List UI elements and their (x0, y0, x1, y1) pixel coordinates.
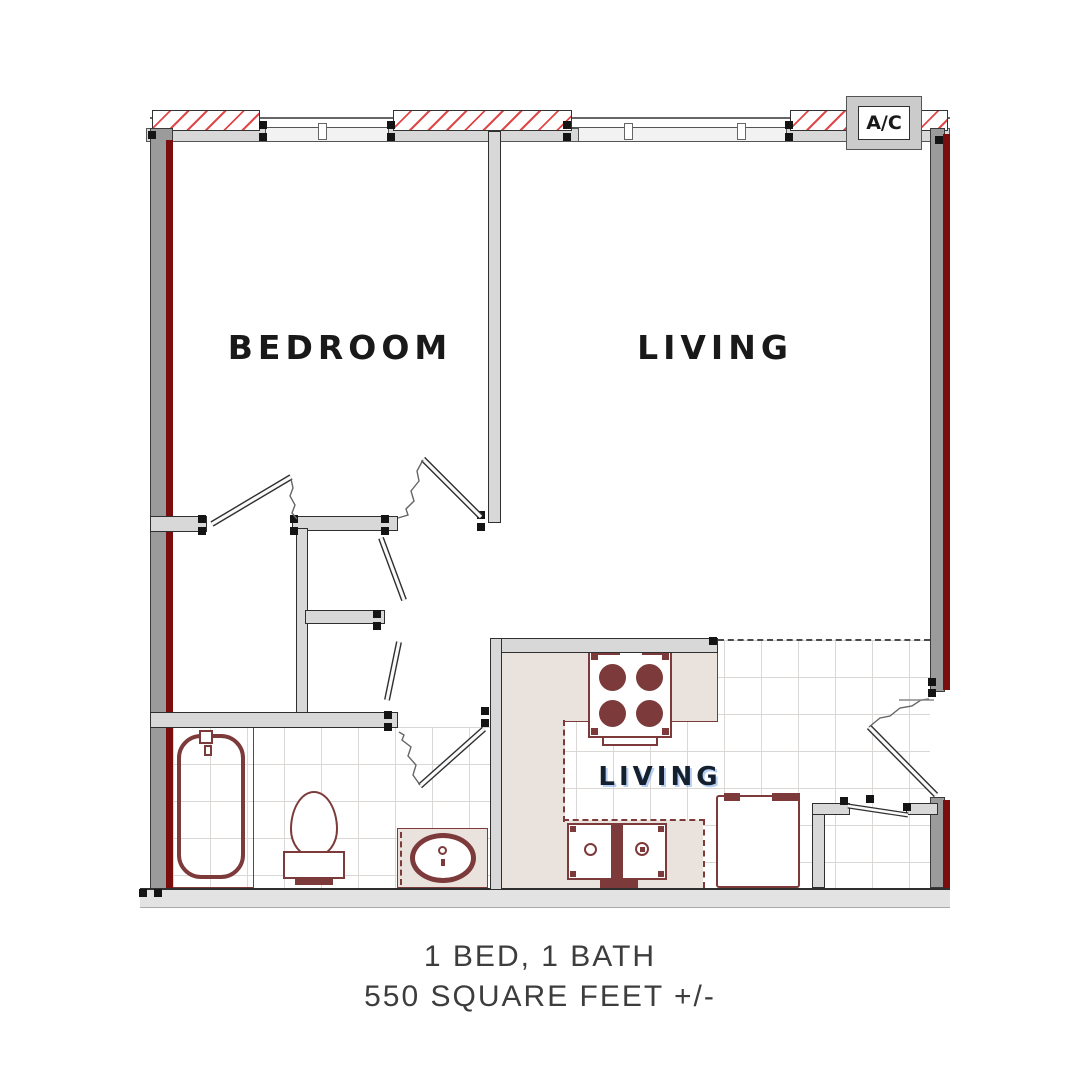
stove-corner (591, 653, 598, 660)
living-label: LIVING (610, 328, 820, 370)
hinge-marker (866, 795, 874, 803)
toilet (283, 791, 345, 888)
hinge-marker (373, 610, 381, 618)
fridge-handle (772, 793, 800, 801)
stove-corner (591, 728, 598, 735)
kitchen-label: LIVING (575, 762, 745, 798)
closet-door-lower (387, 642, 399, 700)
vanity-faucet (438, 846, 447, 855)
hinge-marker (387, 133, 395, 141)
window-mullion (624, 123, 633, 140)
closet-door-upper (381, 538, 404, 600)
hinge-marker (384, 723, 392, 731)
bathtub-faucet (199, 730, 213, 744)
left-wall-accent (166, 140, 173, 888)
sink-drain (584, 843, 597, 856)
bathtub (168, 725, 254, 888)
caption-line-2: 550 SQUARE FEET +/- (0, 980, 1080, 1014)
hinge-marker (840, 797, 848, 805)
hinge-marker (477, 511, 485, 519)
bottom-wall (140, 888, 950, 908)
stove-burner (599, 700, 626, 727)
hinge-marker (387, 121, 395, 129)
stove-burner (636, 700, 663, 727)
hinge-marker (373, 622, 381, 630)
hinge-marker (139, 889, 147, 897)
right-wall-accent (943, 134, 950, 690)
ac-label-box: A/C (858, 106, 910, 140)
sink-divider (611, 825, 623, 878)
counter-dashed-edge (703, 819, 705, 888)
sink-corner (570, 826, 576, 832)
stove-burner (599, 664, 626, 691)
hinge-marker (477, 523, 485, 531)
kitchen-sink (567, 823, 667, 880)
floor-transition-line (718, 639, 930, 641)
bedroom-door (212, 477, 297, 524)
hinge-marker (785, 133, 793, 141)
vanity-basin (410, 833, 476, 883)
sink-corner (658, 871, 664, 877)
hinge-marker (709, 637, 717, 645)
toilet-bowl (290, 791, 338, 857)
hinge-marker (928, 689, 936, 697)
bathtub-faucet-knob (204, 745, 212, 756)
bedroom-living-divider-wall (488, 131, 501, 523)
toilet-tank (283, 851, 345, 879)
stove-corner (662, 653, 669, 660)
bedroom-label: BEDROOM (215, 328, 465, 370)
wall-hatch (393, 110, 572, 131)
caption-line-1: 1 BED, 1 BATH (0, 940, 1080, 974)
hinge-marker (381, 515, 389, 523)
ac-unit: A/C (846, 96, 922, 150)
hinge-marker (481, 707, 489, 715)
window (568, 127, 793, 142)
hinge-marker (384, 711, 392, 719)
stove-corner (662, 728, 669, 735)
window-mullion (318, 123, 327, 140)
hinge-marker (198, 515, 206, 523)
hinge-marker (903, 803, 911, 811)
right-wall-lower-accent (943, 800, 950, 888)
sink-corner (570, 871, 576, 877)
hinge-marker (148, 131, 156, 139)
sink-corner (658, 826, 664, 832)
stove-cooktop (588, 650, 672, 738)
hinge-marker (259, 121, 267, 129)
bathroom-top-wall (150, 712, 398, 728)
hinge-marker (935, 136, 943, 144)
stove-burner (636, 664, 663, 691)
hall-door (398, 459, 481, 518)
hinge-marker (381, 527, 389, 535)
toilet-base (295, 879, 333, 885)
hinge-marker (481, 719, 489, 727)
counter-dashed-edge (563, 720, 565, 822)
wall-hatch (790, 110, 848, 131)
stove-panel (602, 736, 658, 746)
hinge-marker (290, 527, 298, 535)
hinge-marker (785, 121, 793, 129)
window-mullion (737, 123, 746, 140)
hinge-marker (198, 527, 206, 535)
floor-plan: A/C (0, 0, 1080, 1080)
vanity-drain (441, 859, 445, 866)
vanity-dashed-edge (400, 832, 402, 885)
ac-label: A/C (866, 112, 902, 134)
hinge-marker (154, 889, 162, 897)
kitchen-top-wall (492, 638, 718, 653)
hinge-marker (928, 678, 936, 686)
kitchen-left-wall (490, 638, 502, 890)
counter-dashed-edge (563, 819, 705, 821)
sink-faucet-dot (640, 847, 645, 852)
refrigerator (716, 795, 800, 888)
hinge-marker (563, 121, 571, 129)
entry-closet-left-wall (812, 803, 825, 888)
hinge-marker (290, 515, 298, 523)
hinge-marker (563, 133, 571, 141)
hinge-marker (259, 133, 267, 141)
sink-vanity (397, 828, 488, 888)
